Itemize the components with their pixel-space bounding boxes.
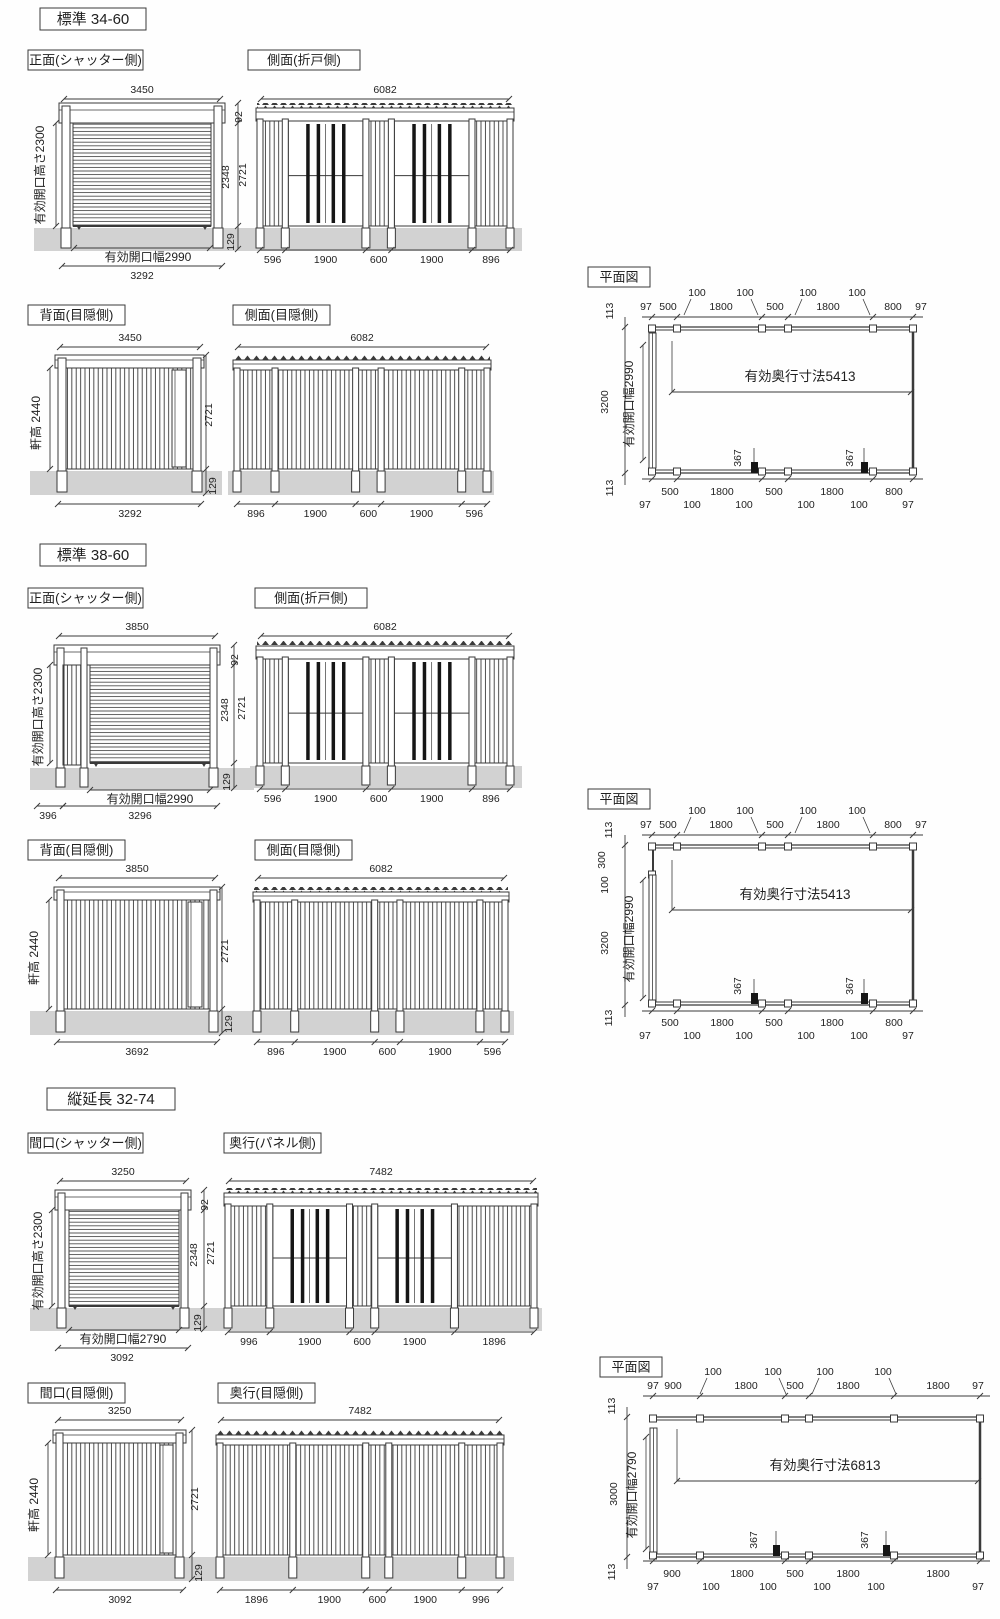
bay-dim-label: 596 <box>264 793 282 805</box>
front-elevation-s1: 正面(シャッター側)3450有効開口高さ23009223482721129有効開… <box>28 50 252 282</box>
panel-mark <box>751 462 758 473</box>
span-dim-label: 500 <box>765 486 783 498</box>
bay-dim-label: 1900 <box>298 1336 322 1348</box>
section-1: 標準 34-60正面(シャッター側)3450有効開口高さ230092234827… <box>28 8 927 520</box>
span-dim-label: 97 <box>972 1380 984 1392</box>
height-dim-label: 129 <box>193 1564 205 1582</box>
footing <box>209 1011 218 1032</box>
side-dim-label: 3200 <box>599 931 611 955</box>
roof-beam <box>55 355 204 368</box>
offset-dim-label: 97 <box>972 1581 984 1593</box>
span-dim-label: 1800 <box>709 301 733 313</box>
post <box>363 1443 369 1557</box>
footing <box>180 1308 189 1328</box>
opening-width-label: 有効開口幅2990 <box>621 360 636 447</box>
folding-door-bar <box>306 662 310 760</box>
view-title: 背面(目隠側) <box>40 308 114 323</box>
width-dim-label: 6082 <box>373 84 397 96</box>
height-dim-label: 2721 <box>219 939 231 963</box>
roller-shutter <box>73 123 211 226</box>
roof-beam <box>54 887 220 900</box>
offset-dim-label: 100 <box>736 805 754 817</box>
plan-title: 平面図 <box>599 792 638 807</box>
post <box>257 657 263 766</box>
folding-door-bar <box>406 1209 410 1303</box>
post <box>272 368 278 471</box>
post-plan <box>870 325 877 332</box>
footing <box>271 471 279 492</box>
privacy-panel <box>230 1206 268 1306</box>
offset-dim-label: 100 <box>688 287 706 299</box>
span-dim-label: 1800 <box>820 1017 844 1029</box>
span-dim-label: 1800 <box>710 486 734 498</box>
span-dim-label: 500 <box>786 1568 804 1580</box>
bay-dim-label: 1900 <box>314 254 338 266</box>
offset-dim-label: 100 <box>816 1366 834 1378</box>
post <box>469 657 475 766</box>
footing <box>468 228 476 248</box>
width-dim-label: 3250 <box>111 1166 135 1178</box>
post-plan <box>910 843 917 850</box>
post-plan <box>674 468 681 475</box>
post <box>292 900 298 1011</box>
post <box>225 1204 231 1308</box>
opening-width-label: 有効開口幅2990 <box>621 895 636 982</box>
post-plan <box>649 843 656 850</box>
post <box>58 358 66 471</box>
privacy-panel <box>377 902 398 1009</box>
offset-dim-label: 97 <box>647 1581 659 1593</box>
rear-elevation-s1: 背面(目隠側)3450軒高 244027211293292 <box>28 305 222 520</box>
footing <box>530 1308 538 1328</box>
span-dim-label: 500 <box>765 1017 783 1029</box>
offset-dim-label: 100 <box>797 1030 815 1042</box>
offset-dim-label: 100 <box>704 1366 722 1378</box>
post-plan <box>674 1000 681 1007</box>
post <box>372 900 378 1011</box>
bay-dim-label: 600 <box>379 1046 397 1058</box>
privacy-panel <box>239 370 273 469</box>
privacy-panel <box>464 370 485 469</box>
mark-dim-label: 367 <box>732 449 744 467</box>
span-dim-label: 1800 <box>709 819 733 831</box>
mark-dim-label: 367 <box>844 977 856 995</box>
footing <box>213 228 223 248</box>
ground-band <box>250 766 522 788</box>
eave-height-label: 軒高 2440 <box>26 1478 41 1532</box>
view-title: 奥行(パネル側) <box>229 1136 316 1151</box>
post <box>282 119 288 228</box>
folding-door-bar <box>423 662 427 760</box>
folding-door-bar <box>423 124 427 223</box>
eave-height-label: 軒高 2440 <box>28 396 43 450</box>
offset-dim-label: 100 <box>764 1366 782 1378</box>
privacy-panel <box>464 1445 498 1555</box>
offset-dim-label: 97 <box>902 499 914 511</box>
offset-dim-label: 100 <box>799 805 817 817</box>
span-dim-label: 500 <box>659 819 677 831</box>
footing <box>289 1557 297 1578</box>
post-plan <box>785 468 792 475</box>
offset-dim-label: 100 <box>683 1030 701 1042</box>
offset-dim-label: 100 <box>867 1581 885 1593</box>
footing <box>209 768 218 787</box>
post <box>469 119 475 228</box>
footing <box>385 1557 393 1578</box>
footing <box>57 471 67 492</box>
side-elevation-privacy-s1: 側面(目隠側)608289619006001900596 <box>228 305 494 520</box>
post-plan <box>785 325 792 332</box>
bottom-dim-label: 3092 <box>110 1352 134 1364</box>
roller-shutter <box>69 1210 179 1306</box>
footing <box>506 228 514 248</box>
width-dim-label: 3850 <box>125 863 149 875</box>
span-dim-label: 1800 <box>816 301 840 313</box>
side-dim-label: 113 <box>606 1563 618 1580</box>
height-dim-label: 2348 <box>219 698 231 722</box>
span-dim-label: 900 <box>664 1380 682 1392</box>
offset-dim-label: 100 <box>688 805 706 817</box>
ground-band <box>228 471 494 495</box>
offset-dim-label: 100 <box>848 287 866 299</box>
drawing-canvas: 標準 34-60正面(シャッター側)3450有効開口高さ230092234827… <box>0 0 1000 1619</box>
footing <box>192 471 202 492</box>
leader-line <box>812 1378 819 1394</box>
anchor-arrow-icon <box>201 762 207 767</box>
footing <box>224 1308 232 1328</box>
view-title: 正面(シャッター側) <box>29 53 142 68</box>
footing <box>253 1011 261 1032</box>
post <box>290 1443 296 1557</box>
height-dim-label: 2348 <box>188 1243 200 1267</box>
post-plan <box>782 1415 789 1422</box>
width-dim-label: 6082 <box>373 621 397 633</box>
post <box>497 1443 503 1557</box>
footing <box>501 1011 509 1032</box>
footing <box>483 471 491 492</box>
leader-line <box>751 817 758 833</box>
footing <box>506 766 514 785</box>
height-dim-label: 2721 <box>205 1241 217 1265</box>
span-dim-label: 500 <box>661 486 679 498</box>
privacy-panel <box>222 1445 291 1555</box>
post <box>397 900 403 1011</box>
side-elevation-doors-s1: 側面(折戸側)608259619006001900896 <box>248 50 522 266</box>
front-elevation-s2: 正面(シャッター側)3850有効開口高さ23009223482721129有効開… <box>28 588 254 822</box>
footing <box>55 1557 64 1578</box>
span-dim-label: 1800 <box>816 819 840 831</box>
post <box>81 648 87 768</box>
bay-dim-label: 1896 <box>483 1336 507 1348</box>
folding-door-bar <box>301 1209 305 1303</box>
folding-door-bar <box>412 124 416 223</box>
view-title: 正面(シャッター側) <box>29 591 142 606</box>
height-dim-label: 129 <box>223 1015 235 1033</box>
post <box>193 358 201 471</box>
post-plan <box>910 325 917 332</box>
post <box>459 1443 465 1557</box>
opening-width-label: 有効開口幅2790 <box>624 1451 639 1538</box>
span-dim-label: 97 <box>640 301 652 313</box>
privacy-panel <box>277 370 354 469</box>
post <box>181 1193 188 1308</box>
footing <box>476 1011 484 1032</box>
privacy-panel <box>456 1206 532 1306</box>
folding-door-bar <box>306 124 310 223</box>
opening-height-label: 有効開口高さ2300 <box>30 667 45 766</box>
privacy-panel <box>262 121 283 226</box>
width-dim-label: 6082 <box>369 863 393 875</box>
section-badge: 標準 38-60 <box>57 547 130 564</box>
roof-caps <box>257 641 513 646</box>
post <box>372 1204 378 1308</box>
post <box>477 900 483 1011</box>
leader-line <box>779 1378 786 1394</box>
span-dim-label: 500 <box>786 1380 804 1392</box>
offset-dim-label: 97 <box>902 1030 914 1042</box>
view-title: 側面(折戸側) <box>267 53 341 68</box>
post-plan <box>759 325 766 332</box>
footing <box>371 1308 379 1328</box>
mark-dim-label: 367 <box>844 449 856 467</box>
privacy-panel <box>474 121 508 226</box>
folding-door-bar <box>317 662 321 760</box>
footing <box>387 228 395 248</box>
roof-beam <box>53 1430 186 1443</box>
bay-dim-label: 896 <box>247 508 265 520</box>
footing <box>468 766 476 785</box>
panel-mark <box>861 993 868 1004</box>
height-dim-label: 129 <box>221 773 233 791</box>
panel-mark <box>773 1545 780 1556</box>
offset-dim-label: 100 <box>702 1581 720 1593</box>
post-plan <box>910 1000 917 1007</box>
panel-mark <box>883 1545 890 1556</box>
span-dim-label: 1800 <box>820 486 844 498</box>
offset-dim-label: 100 <box>850 1030 868 1042</box>
offset-dim-label: 100 <box>759 1581 777 1593</box>
side-strip-panel <box>63 665 81 765</box>
post <box>451 1204 457 1308</box>
footing <box>57 1308 66 1328</box>
panel-mark <box>861 462 868 473</box>
plan-title: 平面図 <box>599 270 638 285</box>
bay-dim-label: 1900 <box>403 1336 427 1348</box>
width-dim-label: 3450 <box>130 84 154 96</box>
roof-beam <box>59 103 225 123</box>
width-dim-label: 3250 <box>108 1405 132 1417</box>
footing <box>396 1011 404 1032</box>
post <box>484 368 490 471</box>
privacy-panel <box>474 659 508 763</box>
width-dim-label: 3450 <box>118 332 142 344</box>
opening-height-label: 有効開口高さ2300 <box>32 125 47 224</box>
post-plan <box>649 1000 656 1007</box>
post <box>234 368 240 471</box>
plan-title: 平面図 <box>611 1360 650 1375</box>
privacy-panel <box>368 1445 387 1555</box>
bay-dim-label: 896 <box>267 1046 285 1058</box>
post-plan <box>977 1415 984 1422</box>
offset-dim-label: 100 <box>850 499 868 511</box>
privacy-panel <box>63 1443 176 1555</box>
height-dim-label: 2721 <box>189 1487 201 1511</box>
span-dim-label: 500 <box>659 301 677 313</box>
post <box>210 648 217 768</box>
blueprint-svg: 標準 34-60正面(シャッター側)3450有効開口高さ230092234827… <box>0 0 1000 1619</box>
height-dim-label: 129 <box>192 1314 204 1332</box>
span-dim-label: 1800 <box>926 1380 950 1392</box>
offset-dim-label: 100 <box>799 287 817 299</box>
floor-plan-s2: 平面図1001001001009750018005001800800971133… <box>588 789 927 1042</box>
side-dim-label: 113 <box>603 821 615 838</box>
leader-line <box>684 299 691 315</box>
bay-dim-label: 600 <box>353 1336 371 1348</box>
privacy-panel <box>482 902 503 1009</box>
folding-door-bar <box>448 124 452 223</box>
bay-dim-label: 1900 <box>420 793 444 805</box>
post <box>363 119 369 228</box>
post <box>267 1204 273 1308</box>
post-plan <box>674 325 681 332</box>
footing <box>496 1557 504 1578</box>
offset-dim-label: 97 <box>639 499 651 511</box>
section-2: 標準 38-60正面(シャッター側)3850有効開口高さ230092234827… <box>26 544 927 1058</box>
depth-dim-label: 有効奥行寸法6813 <box>769 1457 880 1473</box>
post-plan <box>697 1415 704 1422</box>
post <box>388 657 394 766</box>
privacy-panel <box>402 902 478 1009</box>
folding-door-bar <box>290 1209 294 1303</box>
section-badge: 縦延長 32-74 <box>67 1091 155 1108</box>
width-dim-label: 3850 <box>125 621 149 633</box>
bay-dim-label: 1900 <box>314 793 338 805</box>
privacy-panel <box>295 1445 364 1555</box>
footing <box>362 766 370 785</box>
post <box>257 119 263 228</box>
folding-door-bar <box>342 662 346 760</box>
bottom-dim-label: 396 <box>39 810 57 822</box>
footing <box>266 1308 274 1328</box>
post-plan <box>674 843 681 850</box>
bay-dim-label: 896 <box>482 254 500 266</box>
footing <box>450 1308 458 1328</box>
bay-dim-label: 1900 <box>410 508 434 520</box>
post-plan <box>891 1415 898 1422</box>
leader-line <box>863 299 870 315</box>
bay-dim-label: 600 <box>370 793 388 805</box>
height-dim-label: 2721 <box>203 403 215 427</box>
bay-dim-label: 1896 <box>245 1594 269 1606</box>
bottom-dim-label: 3292 <box>118 508 142 520</box>
privacy-panel <box>368 659 389 763</box>
post-plan <box>649 468 656 475</box>
post <box>217 1443 223 1557</box>
post <box>282 657 288 766</box>
folding-door-bar <box>326 1209 330 1303</box>
side-dim-label: 113 <box>604 479 616 496</box>
post-plan <box>910 468 917 475</box>
post-plan <box>870 468 877 475</box>
footing <box>256 766 264 785</box>
post <box>507 657 513 766</box>
footing <box>56 1011 65 1032</box>
folding-door-bar <box>438 662 442 760</box>
offset-dim-label: 97 <box>639 1030 651 1042</box>
roof-caps <box>254 887 508 892</box>
post-plan <box>759 843 766 850</box>
offset-dim-label: 100 <box>797 499 815 511</box>
height-dim-label: 92 <box>199 1199 211 1211</box>
bay-dim-label: 1900 <box>428 1046 452 1058</box>
post <box>363 657 369 766</box>
roof-caps <box>234 355 490 360</box>
offset-dim-label: 100 <box>736 287 754 299</box>
height-dim-label: 129 <box>207 477 219 495</box>
footing <box>281 228 289 248</box>
folding-door-bar <box>412 662 416 760</box>
depth-dim-label: 有効奥行寸法5413 <box>739 886 850 902</box>
offset-dim-label: 100 <box>813 1581 831 1593</box>
post-plan <box>759 468 766 475</box>
folding-door-bar <box>342 124 346 223</box>
span-dim-label: 800 <box>884 301 902 313</box>
span-dim-label: 800 <box>884 819 902 831</box>
view-title: 間口(目隠側) <box>40 1386 114 1401</box>
leader-line <box>751 299 758 315</box>
width-dim-label: 7482 <box>369 1166 393 1178</box>
service-door <box>188 902 202 1007</box>
footing <box>80 768 88 787</box>
footing <box>362 1557 370 1578</box>
footing <box>175 1557 184 1578</box>
span-dim-label: 900 <box>663 1568 681 1580</box>
bay-dim-label: 996 <box>240 1336 258 1348</box>
footing <box>458 1557 466 1578</box>
bay-dim-label: 600 <box>370 254 388 266</box>
folding-door-bar <box>332 124 336 223</box>
side-dim-label: 113 <box>604 302 616 319</box>
folding-door-bar <box>420 1209 424 1303</box>
span-dim-label: 97 <box>915 819 927 831</box>
depth-dim-label: 有効奥行寸法5413 <box>744 368 855 384</box>
leader-line <box>795 817 802 833</box>
bay-dim-label: 1900 <box>420 254 444 266</box>
bottom-dim-label: 有効開口幅2990 <box>105 249 192 264</box>
leader-line <box>700 1378 707 1394</box>
floor-plan-s3: 平面図1001001001009790018005001800180097113… <box>600 1357 990 1593</box>
side-dim-label: 100 <box>599 876 611 894</box>
privacy-panel <box>358 370 379 469</box>
height-dim-label: 2721 <box>236 696 248 720</box>
height-dim-label: 92 <box>229 654 241 666</box>
footing <box>371 1011 379 1032</box>
footing <box>291 1011 299 1032</box>
rear-elevation-s3: 間口(目隠側)3250軒高 244027211293092 <box>26 1383 226 1606</box>
side-dim-label: 300 <box>596 851 608 869</box>
footing <box>256 228 264 248</box>
span-dim-label: 97 <box>647 1380 659 1392</box>
span-dim-label: 500 <box>766 301 784 313</box>
bottom-dim-label: 3292 <box>130 270 154 282</box>
footing <box>346 1308 354 1328</box>
view-title: 背面(目隠側) <box>40 843 114 858</box>
footing <box>362 228 370 248</box>
post-plan <box>759 1000 766 1007</box>
opening-height-label: 有効開口高さ2300 <box>30 1211 45 1310</box>
panel-mark <box>751 993 758 1004</box>
privacy-panel <box>352 1206 373 1306</box>
